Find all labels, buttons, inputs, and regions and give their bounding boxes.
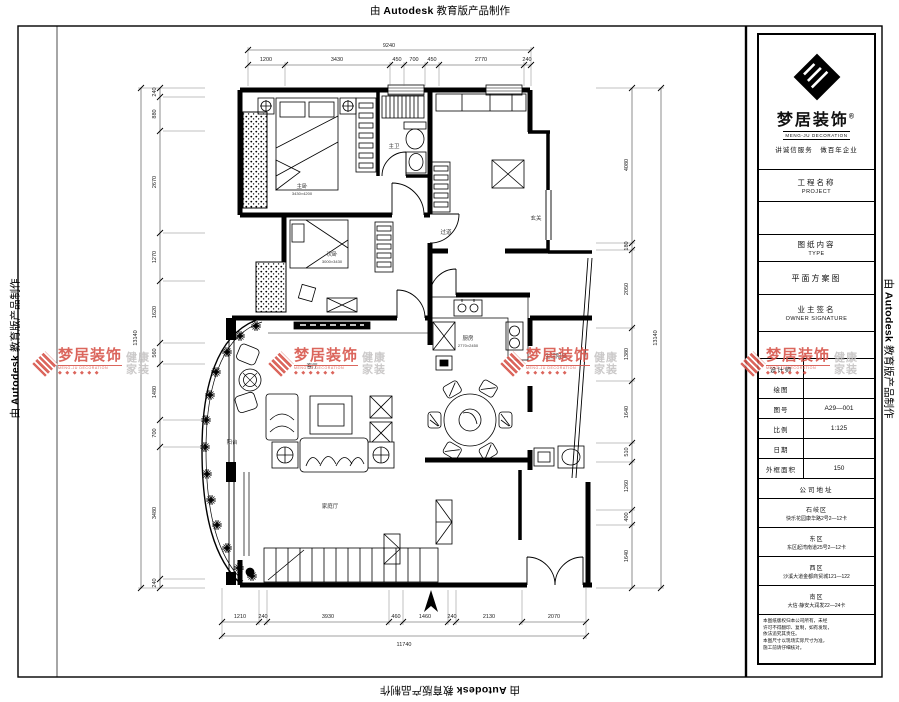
autodesk-stamp-right: 由 Autodesk 教育版产品制作	[882, 274, 897, 424]
svg-text:510: 510	[624, 447, 630, 456]
svg-text:180: 180	[624, 241, 630, 250]
autodesk-stamp-top: 由 Autodesk 教育版产品制作	[365, 3, 515, 18]
svg-text:2130: 2130	[483, 614, 495, 620]
svg-text:1260: 1260	[624, 480, 630, 492]
svg-text:880: 880	[152, 109, 158, 118]
svg-text:13140: 13140	[653, 330, 659, 345]
svg-text:13140: 13140	[133, 330, 139, 345]
svg-text:1640: 1640	[624, 406, 630, 418]
furniture	[244, 94, 584, 582]
svg-text:4080: 4080	[624, 159, 630, 171]
type-row: 图纸内容 TYPE	[759, 235, 874, 262]
room-label: 过道	[440, 228, 452, 236]
owner-label: 业主签名	[798, 304, 836, 315]
svg-text:700: 700	[409, 57, 418, 63]
svg-text:240: 240	[152, 87, 158, 96]
svg-text:3430: 3430	[331, 57, 343, 63]
field-scale: 比例 1:125	[759, 419, 874, 439]
notes-block: 本图纸版权归本公司所有，未经 许可不得翻印、复制，如有发现， 依法追究其责任。 …	[759, 615, 874, 663]
svg-text:450: 450	[427, 57, 436, 63]
brand-watermark: 梦居装饰 MENG-JU DECORATION ◆◆◆◆◆◆ 健康家装	[272, 348, 386, 376]
watermark-diamond-icon	[740, 351, 765, 376]
svg-text:400: 400	[624, 512, 630, 521]
brand-watermark: 梦居装饰 MENG-JU DECORATION ◆◆◆◆◆◆ 健康家装	[36, 348, 150, 376]
room-size: 3430×4200	[292, 191, 313, 196]
watermark-diamond-icon	[268, 351, 293, 376]
address-block: 石岐区 快乐花园康华路2号2—12卡	[759, 499, 874, 528]
svg-text:240: 240	[522, 57, 531, 63]
owner-signature-row: 业主签名 OWNER SIGNATURE	[759, 295, 874, 332]
room-label: 次卧	[326, 250, 338, 258]
svg-text:1460: 1460	[419, 614, 431, 620]
type-label-en: TYPE	[808, 251, 824, 257]
watermark-diamond-icon	[500, 351, 525, 376]
field-drafter: 绘图	[759, 379, 874, 399]
window-wall-chunks	[226, 318, 236, 585]
svg-text:560: 560	[152, 348, 158, 357]
field-date: 日期	[759, 439, 874, 459]
planter-hatch-mid	[256, 262, 286, 312]
svg-text:1210: 1210	[234, 614, 246, 620]
room-label: 家庭厅	[322, 502, 339, 510]
svg-text:1640: 1640	[624, 550, 630, 562]
project-label-en: PROJECT	[802, 189, 831, 195]
company-logo-icon	[791, 51, 843, 103]
brand-name: 梦居装饰®	[777, 106, 856, 130]
north-arrow-icon	[424, 590, 438, 612]
svg-text:3930: 3930	[322, 614, 334, 620]
svg-text:450: 450	[392, 57, 401, 63]
room-label: 厨房	[462, 334, 474, 342]
room-label: 阳台	[226, 438, 238, 446]
room-size: 2770×2450	[458, 343, 479, 348]
svg-text:2070: 2070	[548, 614, 560, 620]
brand-watermark: 梦居装饰 MENG-JU DECORATION ◆◆◆◆◆◆ 健康家装	[504, 348, 618, 376]
svg-text:240: 240	[258, 614, 267, 620]
svg-text:2770: 2770	[475, 57, 487, 63]
watermark-diamond-icon	[32, 351, 57, 376]
field-area: 外框面积 150	[759, 459, 874, 479]
svg-text:3480: 3480	[152, 507, 158, 519]
address-block: 南区 大信·静安大润发22—24卡	[759, 586, 874, 615]
project-row: 工程名称 PROJECT	[759, 170, 874, 202]
brand-tagline: 讲诚信服务 做百年企业	[775, 144, 858, 154]
type-value: 平面方案图	[759, 262, 874, 295]
address-block: 西区 沙溪大道金都商贸城121—122	[759, 557, 874, 586]
company-logo-section: 梦居装饰® MENG-JU DECORATION 讲诚信服务 做百年企业	[759, 35, 874, 170]
room-label: 主卫	[388, 142, 400, 150]
project-label: 工程名称	[798, 177, 836, 188]
room-label: 主卧	[296, 182, 308, 190]
type-label: 图纸内容	[798, 239, 836, 250]
field-drawing-no: 图号 A29—001	[759, 399, 874, 419]
svg-text:1480: 1480	[152, 386, 158, 398]
svg-text:700: 700	[152, 428, 158, 437]
svg-text:2670: 2670	[152, 176, 158, 188]
svg-text:1620: 1620	[152, 306, 158, 318]
project-value-cell	[759, 202, 874, 235]
room-size: 3000×3430	[322, 259, 343, 264]
room-label: 玄关	[530, 214, 542, 222]
svg-text:11740: 11740	[397, 642, 412, 648]
svg-text:1200: 1200	[260, 57, 272, 63]
svg-text:1380: 1380	[624, 348, 630, 360]
balcony-furniture	[234, 343, 261, 414]
svg-text:2050: 2050	[624, 283, 630, 295]
autodesk-stamp-bottom: 由 Autodesk 教育版产品制作	[375, 683, 525, 698]
svg-text:240: 240	[447, 614, 456, 620]
address-header: 公司地址	[759, 479, 874, 499]
svg-text:1270: 1270	[152, 251, 158, 263]
address-block: 东区 东区起湾南道25号2—12卡	[759, 528, 874, 557]
brand-name-en: MENG-JU DECORATION	[783, 131, 849, 140]
brand-watermark: 梦居装饰 MENG-JU DECORATION ◆◆◆◆◆◆ 健康家装	[744, 348, 858, 376]
svg-text:460: 460	[391, 614, 400, 620]
svg-text:240: 240	[152, 578, 158, 587]
owner-label-en: OWNER SIGNATURE	[786, 316, 848, 322]
autodesk-stamp-left: 由 Autodesk 教育版产品制作	[8, 274, 23, 424]
svg-text:9240: 9240	[383, 43, 395, 49]
planter-hatch-top	[243, 112, 267, 208]
